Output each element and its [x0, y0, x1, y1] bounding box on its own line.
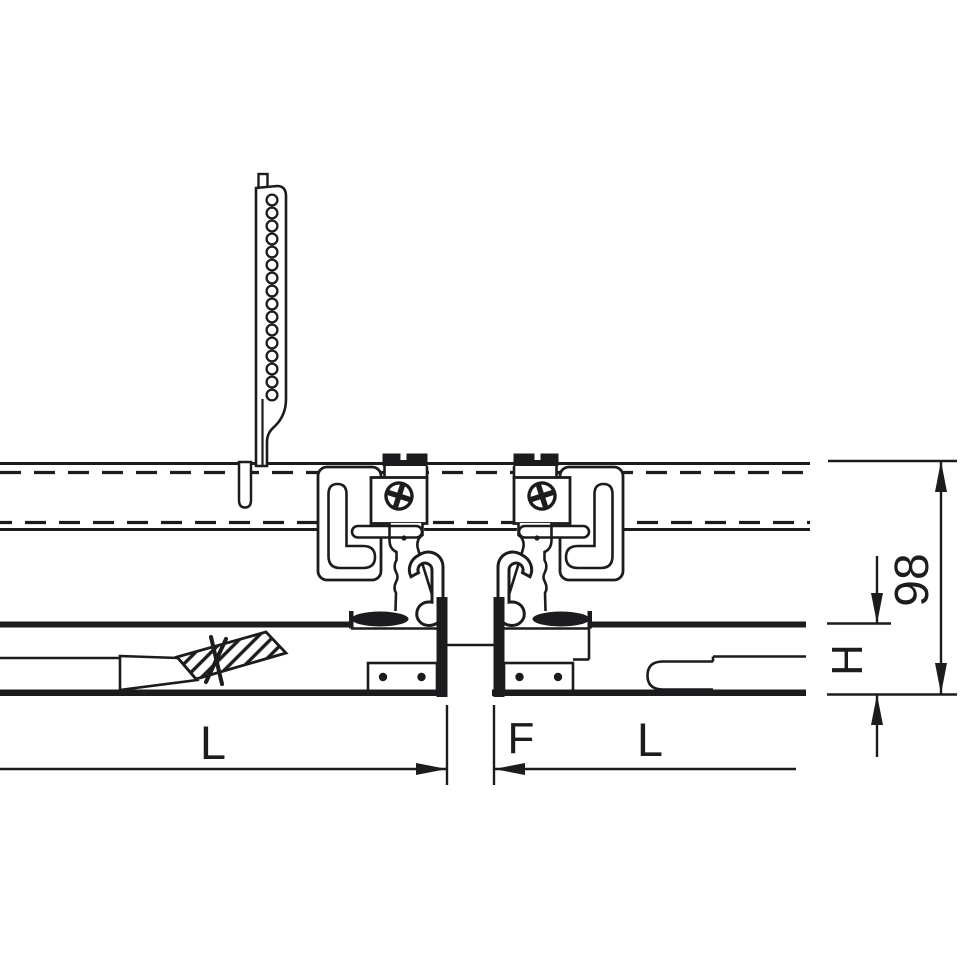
rivet	[515, 673, 523, 681]
rivet	[554, 673, 562, 681]
dim-label-total-height: 98	[886, 553, 939, 606]
profile-right-end-plate	[504, 663, 573, 691]
strap-hook	[239, 462, 251, 508]
technical-drawing-canvas: L F L 98 H	[0, 0, 960, 960]
rivet	[417, 673, 425, 681]
bracket-left	[318, 454, 448, 698]
dimension-gap: F	[508, 714, 535, 763]
lower-profile-left	[0, 622, 446, 697]
dimension-length-right: L	[494, 713, 796, 775]
profile-left-top-chord	[0, 622, 351, 628]
arrowhead-up-icon	[935, 461, 947, 492]
profile-left-end-plate	[368, 663, 437, 691]
dim-label-gap: F	[508, 714, 535, 763]
dim-label-length-right: L	[637, 713, 663, 766]
rivet	[379, 673, 387, 681]
dim-label-height: H	[823, 644, 872, 676]
dim-label-length-left: L	[200, 716, 226, 769]
arrowhead-up-icon	[871, 695, 883, 726]
profile-right-bottom-chord	[492, 690, 806, 697]
hanger-strap	[239, 174, 286, 508]
arrowhead-down-icon	[935, 663, 947, 694]
arrowhead-left-icon	[494, 763, 525, 775]
lower-profile-right	[492, 622, 806, 697]
arrowhead-down-icon	[871, 593, 883, 624]
arrowhead-right-icon	[416, 763, 447, 775]
bracket-right	[494, 454, 624, 698]
profile-right-top-chord	[588, 622, 806, 628]
dimension-height: H	[823, 556, 883, 757]
sectioned-rod	[120, 632, 286, 690]
profile-left-bottom-chord	[0, 690, 446, 697]
dimension-length-left: L	[0, 716, 447, 775]
suspension-diagram: L F L 98 H	[0, 0, 960, 960]
connector-tongue	[648, 662, 714, 690]
dimension-total-height: 98	[886, 461, 947, 694]
